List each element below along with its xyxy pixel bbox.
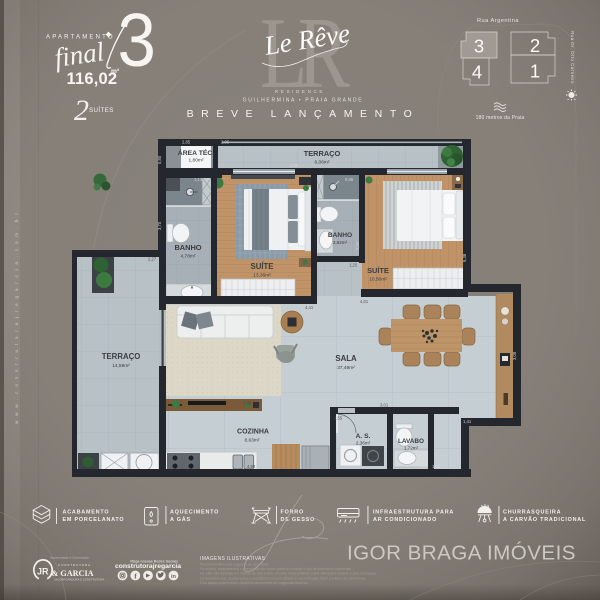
svg-text:Planta ilustrativa com sugestã: Planta ilustrativa com sugestão de decor… (200, 562, 269, 566)
svg-text:Os revestimentos, acabamentos: Os revestimentos, acabamentos e mobiliár… (200, 576, 366, 580)
svg-text:LAVABO: LAVABO (398, 438, 424, 445)
svg-text:1,10: 1,10 (419, 464, 428, 469)
svg-text:180 metros da Praia: 180 metros da Praia (476, 115, 525, 121)
svg-text:1,00: 1,00 (432, 464, 441, 469)
svg-text:14,59m²: 14,59m² (112, 363, 130, 369)
svg-text:EM PORCELANATO: EM PORCELANATO (63, 517, 125, 523)
svg-text:0,95: 0,95 (345, 177, 354, 182)
svg-text:3: 3 (474, 36, 484, 57)
svg-text:4: 4 (472, 62, 482, 83)
svg-text:CONSTRUTORA: CONSTRUTORA (58, 563, 91, 567)
svg-text:Rua Dr. Otto Carneiro: Rua Dr. Otto Carneiro (570, 31, 575, 84)
svg-text:3: 3 (118, 0, 156, 83)
svg-text:2,05: 2,05 (221, 140, 230, 145)
svg-text:3,70: 3,70 (157, 221, 162, 230)
svg-text:TERRAÇO: TERRAÇO (102, 352, 141, 361)
svg-text:SALA: SALA (335, 354, 357, 363)
svg-text:4,41: 4,41 (305, 305, 314, 310)
svg-text:2: 2 (74, 94, 89, 127)
svg-text:SUÍTES: SUÍTES (89, 107, 114, 114)
svg-text:AQUECIMENTO: AQUECIMENTO (170, 510, 219, 516)
svg-text:5,38: 5,38 (462, 253, 467, 262)
svg-text:m²: m² (111, 68, 120, 75)
svg-text:CHURRASQUEIRA: CHURRASQUEIRA (503, 510, 561, 516)
svg-text:2,85: 2,85 (182, 140, 191, 145)
svg-text:in: in (171, 574, 177, 580)
svg-text:4,93: 4,93 (247, 464, 256, 469)
svg-text:SUÍTE: SUÍTE (251, 262, 274, 271)
svg-text:RESIDENCE: RESIDENCE (275, 89, 325, 94)
svg-text:BREVE LANÇAMENTO: BREVE LANÇAMENTO (187, 108, 420, 120)
svg-text:2,82m²: 2,82m² (333, 240, 348, 245)
svg-text:2,95: 2,95 (243, 401, 252, 406)
svg-text:1,55: 1,55 (334, 416, 343, 421)
svg-text:3,01: 3,01 (380, 403, 389, 408)
svg-text:2,43: 2,43 (355, 241, 360, 250)
svg-text:Rua Argentina: Rua Argentina (477, 18, 519, 24)
svg-text:BANHO: BANHO (174, 243, 201, 252)
svg-text:1,13: 1,13 (194, 177, 203, 182)
svg-text:10,56m²: 10,56m² (369, 277, 387, 283)
svg-text:Os móveis, equipamentos e aces: Os móveis, equipamentos e acessórios não… (200, 567, 352, 571)
svg-text:A CARVÃO TRADICIONAL: A CARVÃO TRADICIONAL (503, 516, 586, 523)
svg-text:A. S.: A. S. (356, 433, 371, 440)
svg-text:A GÁS: A GÁS (170, 516, 191, 523)
svg-text:13,36m²: 13,36m² (253, 273, 271, 279)
svg-text:1,25: 1,25 (349, 263, 358, 268)
svg-text:ÁREA TÉC.: ÁREA TÉC. (178, 148, 214, 157)
svg-text:ACABAMENTO: ACABAMENTO (63, 510, 110, 516)
svg-text:3,08: 3,08 (512, 351, 517, 360)
svg-text:2: 2 (530, 35, 540, 56)
svg-text:1,72m²: 1,72m² (404, 446, 419, 451)
svg-text:INCORPORADORA E CONSTRUTORA: INCORPORADORA E CONSTRUTORA (55, 579, 105, 582)
svg-text:IGOR BRAGA IMÓVEIS: IGOR BRAGA IMÓVEIS (347, 542, 576, 565)
svg-text:4,78m²: 4,78m² (181, 254, 196, 260)
svg-text:Esta planta poderá sofrer vari: Esta planta poderá sofrer variações deco… (200, 581, 308, 585)
svg-text:1,80m²: 1,80m² (189, 158, 204, 164)
svg-text:0,80: 0,80 (157, 155, 162, 164)
svg-text:2,36m²: 2,36m² (356, 441, 371, 446)
svg-text:JR: JR (37, 567, 49, 577)
svg-text:Incorporação e Construção: Incorporação e Construção (50, 556, 89, 560)
svg-text:1: 1 (530, 61, 540, 82)
svg-text:GUILHERMINA • PRAIA GRANDE: GUILHERMINA • PRAIA GRANDE (243, 98, 364, 104)
svg-text:& GARCIA: & GARCIA (52, 569, 94, 578)
svg-text:AR CONDICIONADO: AR CONDICIONADO (373, 517, 437, 523)
svg-text:6,06m²: 6,06m² (315, 160, 330, 166)
svg-text:8,63m²: 8,63m² (245, 438, 260, 444)
svg-text:construtorajregarcia: construtorajregarcia (115, 563, 181, 570)
svg-text:As cotas são medidas em metros: As cotas são medidas em metros, de eixo … (200, 572, 377, 576)
svg-text:116,02: 116,02 (67, 70, 118, 88)
svg-text:2,27: 2,27 (148, 257, 157, 262)
svg-text:2,90: 2,90 (290, 163, 299, 168)
svg-text:TERRAÇO: TERRAÇO (304, 149, 341, 158)
svg-text:IMAGENS ILUSTRATIVAS: IMAGENS ILUSTRATIVAS (200, 556, 266, 562)
svg-text:COZINHA: COZINHA (237, 429, 269, 436)
svg-text:www.construtorajregarcia.com.b: www.construtorajregarcia.com.br (14, 208, 19, 424)
svg-text:SUÍTE: SUÍTE (367, 266, 389, 275)
svg-text:4,61: 4,61 (360, 299, 369, 304)
svg-text:INFRAESTRUTURA PARA: INFRAESTRUTURA PARA (373, 510, 454, 516)
svg-text:37,49m²: 37,49m² (337, 365, 355, 371)
svg-text:BANHO: BANHO (328, 232, 352, 239)
svg-text:1,41: 1,41 (463, 419, 472, 424)
